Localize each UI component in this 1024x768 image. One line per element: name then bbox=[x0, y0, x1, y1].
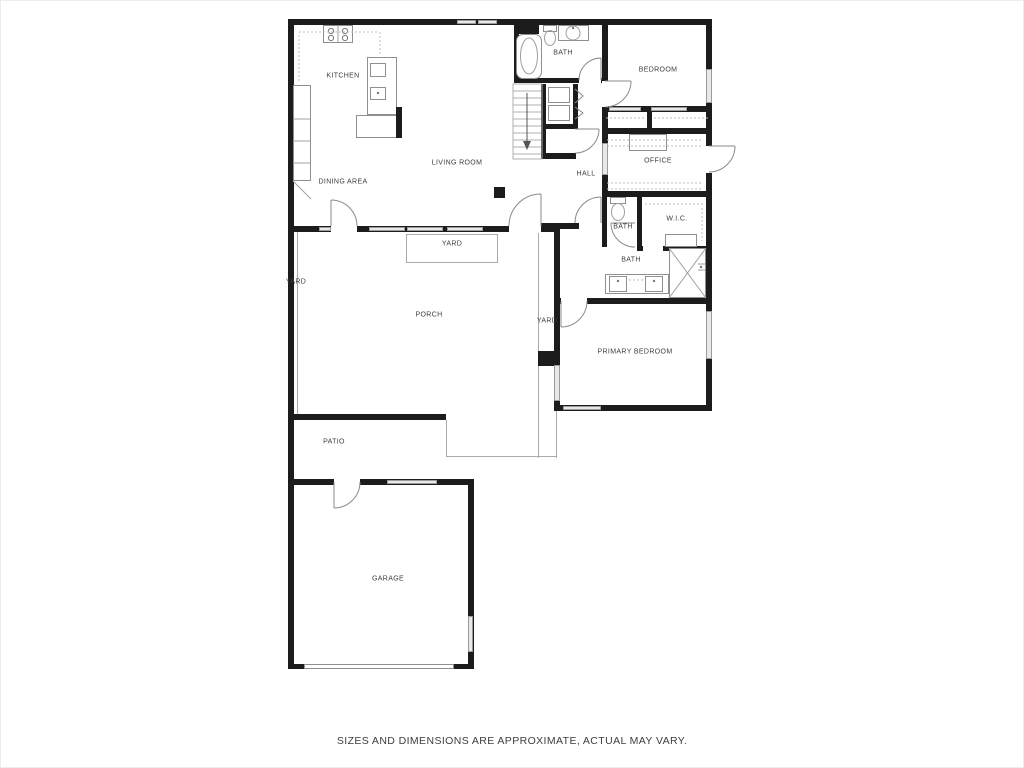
door-swing-arc bbox=[579, 58, 601, 80]
cabinet bbox=[548, 105, 570, 121]
window bbox=[706, 69, 712, 103]
door-opening bbox=[331, 226, 357, 232]
door-swing-arc bbox=[561, 301, 587, 327]
toilet-tank bbox=[610, 197, 626, 204]
door-opening bbox=[602, 81, 608, 107]
wall-segment bbox=[288, 414, 446, 420]
plan-linework bbox=[1, 1, 1024, 768]
window bbox=[407, 227, 443, 231]
window bbox=[706, 311, 712, 359]
wall-segment bbox=[637, 197, 642, 251]
room-label-hall: HALL bbox=[577, 171, 596, 178]
toilet-tank bbox=[543, 25, 557, 32]
room-label-kitchen: KITCHEN bbox=[326, 73, 359, 80]
room-label-dining-area: DINING AREA bbox=[319, 179, 368, 186]
wall-segment bbox=[573, 84, 578, 128]
cabinet bbox=[548, 87, 570, 103]
shower bbox=[669, 248, 706, 298]
door-opening bbox=[706, 146, 712, 173]
door-swing-arc bbox=[605, 81, 631, 107]
closet-slider-door bbox=[609, 107, 641, 111]
room-label-bath-top: BATH bbox=[553, 50, 573, 57]
room-label-yard-mid: YARD bbox=[537, 318, 557, 325]
sink-counter bbox=[558, 25, 589, 41]
window bbox=[457, 20, 476, 24]
door-opening bbox=[509, 226, 541, 232]
door-swing-arc bbox=[334, 482, 360, 508]
toilet-bowl bbox=[612, 204, 625, 221]
wall-segment bbox=[554, 229, 560, 298]
door-opening bbox=[561, 298, 587, 304]
room-label-primary-bedroom: PRIMARY BEDROOM bbox=[597, 349, 672, 356]
vanity-sink bbox=[645, 276, 663, 292]
window bbox=[468, 616, 473, 652]
dresser bbox=[665, 234, 697, 247]
dishwasher bbox=[370, 63, 386, 77]
room-label-bedroom: BEDROOM bbox=[639, 67, 678, 74]
window bbox=[563, 406, 601, 410]
stair-direction-arrow bbox=[523, 93, 531, 150]
floor-plan: KITCHEN LIVING ROOM DINING AREA BATH BED… bbox=[0, 0, 1024, 768]
door-opening bbox=[643, 246, 663, 251]
closet-slider-door bbox=[651, 107, 687, 111]
garage-door bbox=[304, 664, 454, 669]
window bbox=[478, 20, 497, 24]
door-opening bbox=[334, 479, 360, 485]
door-swing-arc bbox=[575, 129, 599, 153]
kitchen-half-wall bbox=[396, 107, 402, 138]
room-label-patio: PATIO bbox=[323, 439, 345, 446]
window bbox=[447, 227, 483, 231]
wall-segment bbox=[541, 84, 546, 159]
door-swing-arc bbox=[709, 146, 735, 172]
kitchen-sink bbox=[370, 87, 386, 100]
wall-segment bbox=[602, 197, 607, 247]
chimney-chase bbox=[514, 23, 539, 34]
yard-edge-line bbox=[556, 411, 557, 458]
window bbox=[554, 365, 560, 401]
wall-segment bbox=[541, 153, 576, 159]
room-label-yard-left: YARD bbox=[286, 279, 306, 286]
wall-segment bbox=[541, 124, 578, 129]
porch-edge-line bbox=[297, 232, 298, 414]
desk bbox=[629, 134, 667, 151]
room-label-bath-primary: BATH bbox=[621, 257, 641, 264]
yard-planter bbox=[406, 234, 498, 263]
room-label-office: OFFICE bbox=[644, 158, 672, 165]
fireplace bbox=[494, 187, 505, 198]
room-label-wic: W.I.C. bbox=[666, 216, 687, 223]
cased-opening bbox=[602, 143, 608, 175]
yard-edge-line bbox=[538, 233, 539, 458]
window bbox=[369, 227, 405, 231]
window bbox=[319, 227, 331, 231]
room-label-porch: PORCH bbox=[415, 312, 442, 319]
door-swing-arc bbox=[331, 200, 357, 226]
room-label-garage: GARAGE bbox=[372, 576, 404, 583]
yard-edge-line bbox=[446, 456, 557, 457]
bathtub bbox=[516, 34, 542, 79]
yard-edge-line bbox=[446, 420, 447, 457]
door-opening bbox=[579, 78, 601, 83]
room-label-bath-small: BATH bbox=[613, 224, 633, 231]
room-label-living-room: LIVING ROOM bbox=[432, 160, 483, 167]
disclaimer-text: SIZES AND DIMENSIONS ARE APPROXIMATE, AC… bbox=[1, 735, 1023, 747]
room-label-yard-top: YARD bbox=[442, 241, 462, 248]
kitchen-island-end bbox=[356, 115, 397, 138]
stove bbox=[323, 25, 353, 43]
door-swing-arc bbox=[509, 194, 541, 226]
toilet-bowl bbox=[545, 31, 556, 46]
stairs bbox=[513, 84, 542, 159]
door-swing-arc bbox=[575, 197, 601, 223]
refrigerator-counter bbox=[293, 85, 311, 181]
vanity-sink bbox=[609, 276, 627, 292]
wall-segment bbox=[288, 479, 473, 485]
window bbox=[387, 480, 437, 484]
wall-pier bbox=[538, 351, 560, 366]
